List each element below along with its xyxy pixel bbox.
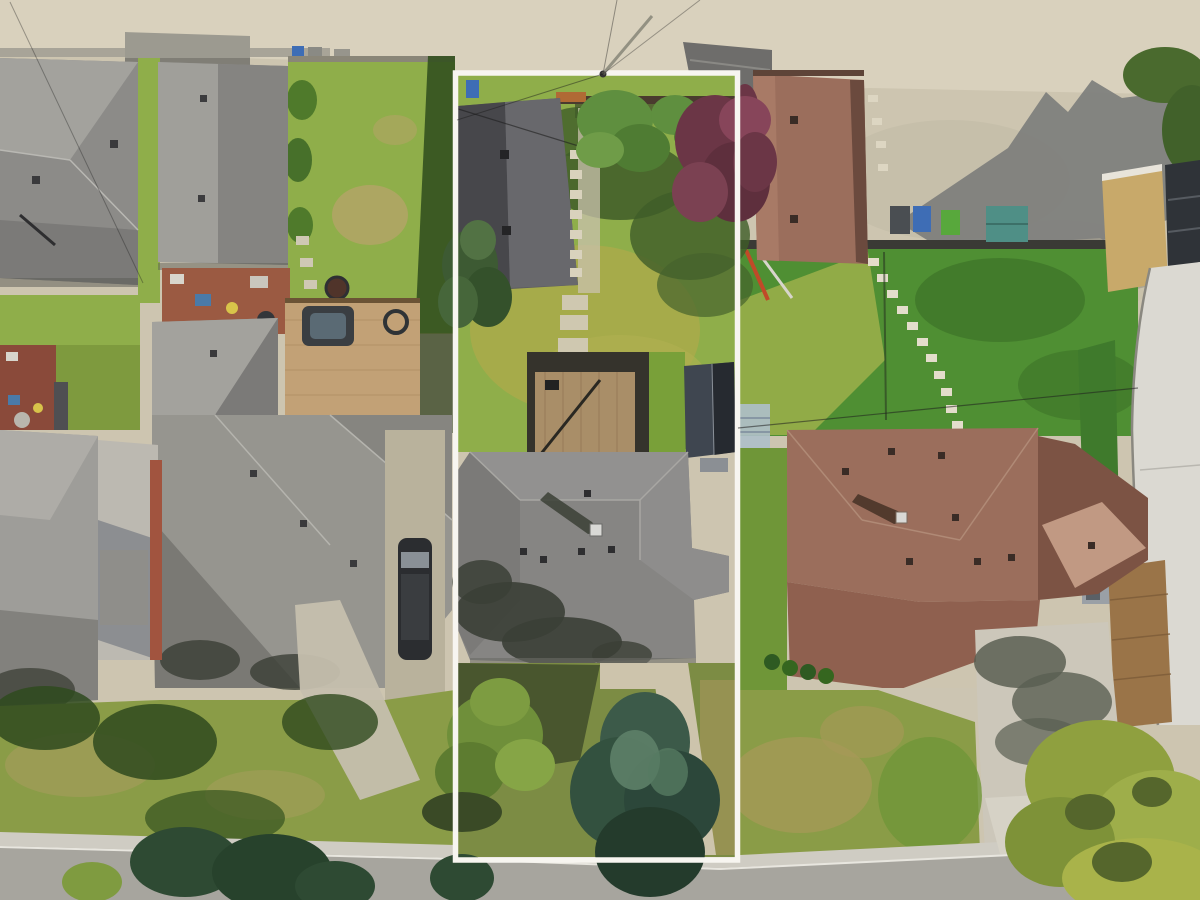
stepping-stone <box>897 306 908 314</box>
deck-rail <box>285 298 420 303</box>
house-top-left <box>0 58 138 287</box>
paver <box>570 170 582 179</box>
deciduous-tree <box>495 739 555 791</box>
hedge-bush <box>818 668 834 684</box>
hot-tub-water <box>310 313 346 339</box>
lawn-shade <box>915 258 1085 342</box>
hedge-bush <box>782 660 798 676</box>
tree-dark-spot <box>1065 794 1115 830</box>
utility-box <box>700 458 728 472</box>
roof-vent <box>578 548 585 555</box>
roof-vent <box>952 514 959 521</box>
paver <box>570 250 582 259</box>
fire-table <box>385 311 407 333</box>
side-lawn-strip <box>740 448 787 690</box>
roof-vent <box>500 150 509 159</box>
roof-vent <box>1088 542 1095 549</box>
stepping-stone <box>877 274 888 282</box>
hedge-bush <box>800 664 816 680</box>
patio-table <box>14 412 30 428</box>
tree-dark-spot <box>1092 842 1152 882</box>
patio-item <box>33 403 43 413</box>
carport-roof <box>100 550 148 625</box>
shrub <box>287 80 317 120</box>
roof-vent <box>790 215 798 223</box>
roof-vent <box>888 448 895 455</box>
stepping-stone <box>934 371 945 379</box>
chimney <box>54 382 68 430</box>
roof-vent <box>974 558 981 565</box>
stepping-stone <box>296 236 309 245</box>
house-b-roof-dark-facet <box>218 64 288 265</box>
chimney-cap <box>590 524 602 536</box>
fence-rail <box>556 92 586 102</box>
paver <box>570 268 582 277</box>
tree-shadow <box>93 704 217 780</box>
patio-item <box>250 276 268 288</box>
roof-vent <box>250 470 257 477</box>
stepping-stone <box>941 388 952 396</box>
roof-vent <box>584 490 591 497</box>
chimney-cap <box>896 512 907 523</box>
evergreen-tree <box>460 220 496 260</box>
tree-shadow <box>282 694 378 750</box>
aerial-photo-canvas <box>0 0 1200 900</box>
roof-vent <box>938 452 945 459</box>
garbage-bin <box>890 206 910 234</box>
paver <box>570 210 582 219</box>
dry-grass-patch <box>332 185 408 245</box>
wood-deck-right <box>1108 560 1172 728</box>
grass-strip <box>56 345 140 430</box>
stepping-stone <box>876 141 886 148</box>
roof-vent <box>1008 554 1015 561</box>
patio-item <box>170 274 184 284</box>
stepping-stone <box>300 258 313 267</box>
van-windshield <box>401 552 429 568</box>
stepping-stone <box>872 118 882 125</box>
stepping-stone <box>304 280 317 289</box>
tree-shadow <box>422 792 502 832</box>
main-house <box>452 452 729 669</box>
stepping-stone <box>868 95 878 102</box>
patio-item <box>195 294 211 306</box>
aerial-photo <box>0 0 1200 900</box>
lawn-strip <box>649 352 685 452</box>
dry-grass-patch <box>373 115 417 145</box>
spruce-highlight <box>648 748 688 796</box>
roof-vent <box>200 95 207 102</box>
patio-item <box>6 352 18 361</box>
paver <box>570 190 582 199</box>
red-fence <box>150 460 162 660</box>
stepping-stone <box>917 338 928 346</box>
roof-vent <box>842 468 849 475</box>
stepping-stone <box>926 354 937 362</box>
stepping-stone <box>907 322 918 330</box>
roof-vent <box>198 195 205 202</box>
house-c <box>0 295 162 712</box>
tree-shadow-on-roof <box>160 640 240 680</box>
spruce-tree <box>595 807 705 897</box>
stepping-stone <box>887 290 898 298</box>
blue-recycle-bin <box>913 206 931 232</box>
shed-roof-dark-facet <box>712 362 736 455</box>
eave-line <box>753 70 864 76</box>
tree-shadow-on-roof <box>452 560 512 604</box>
van-roof <box>401 574 429 640</box>
purple-tree <box>672 162 728 222</box>
stepping-stone <box>952 421 963 429</box>
roof-vent <box>300 520 307 527</box>
stepping-stone <box>878 164 888 171</box>
house-b <box>158 62 288 270</box>
side-yard-grass <box>138 58 160 303</box>
paver <box>570 230 582 239</box>
shrub <box>284 138 312 182</box>
driveway-with-van <box>385 430 445 730</box>
eave-shadow <box>0 278 138 287</box>
roof-vent <box>32 176 40 184</box>
grass-strip <box>0 295 140 347</box>
roof-vent <box>502 226 511 235</box>
left-block <box>0 56 455 852</box>
roof-vent <box>210 350 217 357</box>
roof-vent <box>608 546 615 553</box>
dark-panel-roof <box>1165 160 1200 268</box>
roof-vent <box>110 140 118 148</box>
blue-bin <box>466 80 479 98</box>
tree-dark-spot <box>1132 777 1172 807</box>
hedge-bush <box>764 654 780 670</box>
roof-vent <box>906 558 913 565</box>
patio-item <box>226 302 238 314</box>
paver-large <box>560 315 588 330</box>
house-b-roof-light-facet <box>158 62 218 263</box>
patio-item <box>8 395 20 405</box>
green-tree <box>576 132 624 168</box>
stepping-stone <box>868 258 879 266</box>
roof-vent <box>520 548 527 555</box>
brown-roof-main <box>787 428 1040 602</box>
green-grass-patch <box>878 737 982 853</box>
paver-large <box>562 295 588 310</box>
roof-vent <box>790 116 798 124</box>
green-compost-bin <box>941 210 960 235</box>
roof-vent <box>540 556 547 563</box>
roof-vent <box>350 560 357 567</box>
deciduous-tree <box>470 678 530 726</box>
grill <box>545 380 559 390</box>
fire-pit <box>326 277 348 299</box>
dry-grass-patch <box>820 706 904 758</box>
paver-large <box>558 338 588 353</box>
